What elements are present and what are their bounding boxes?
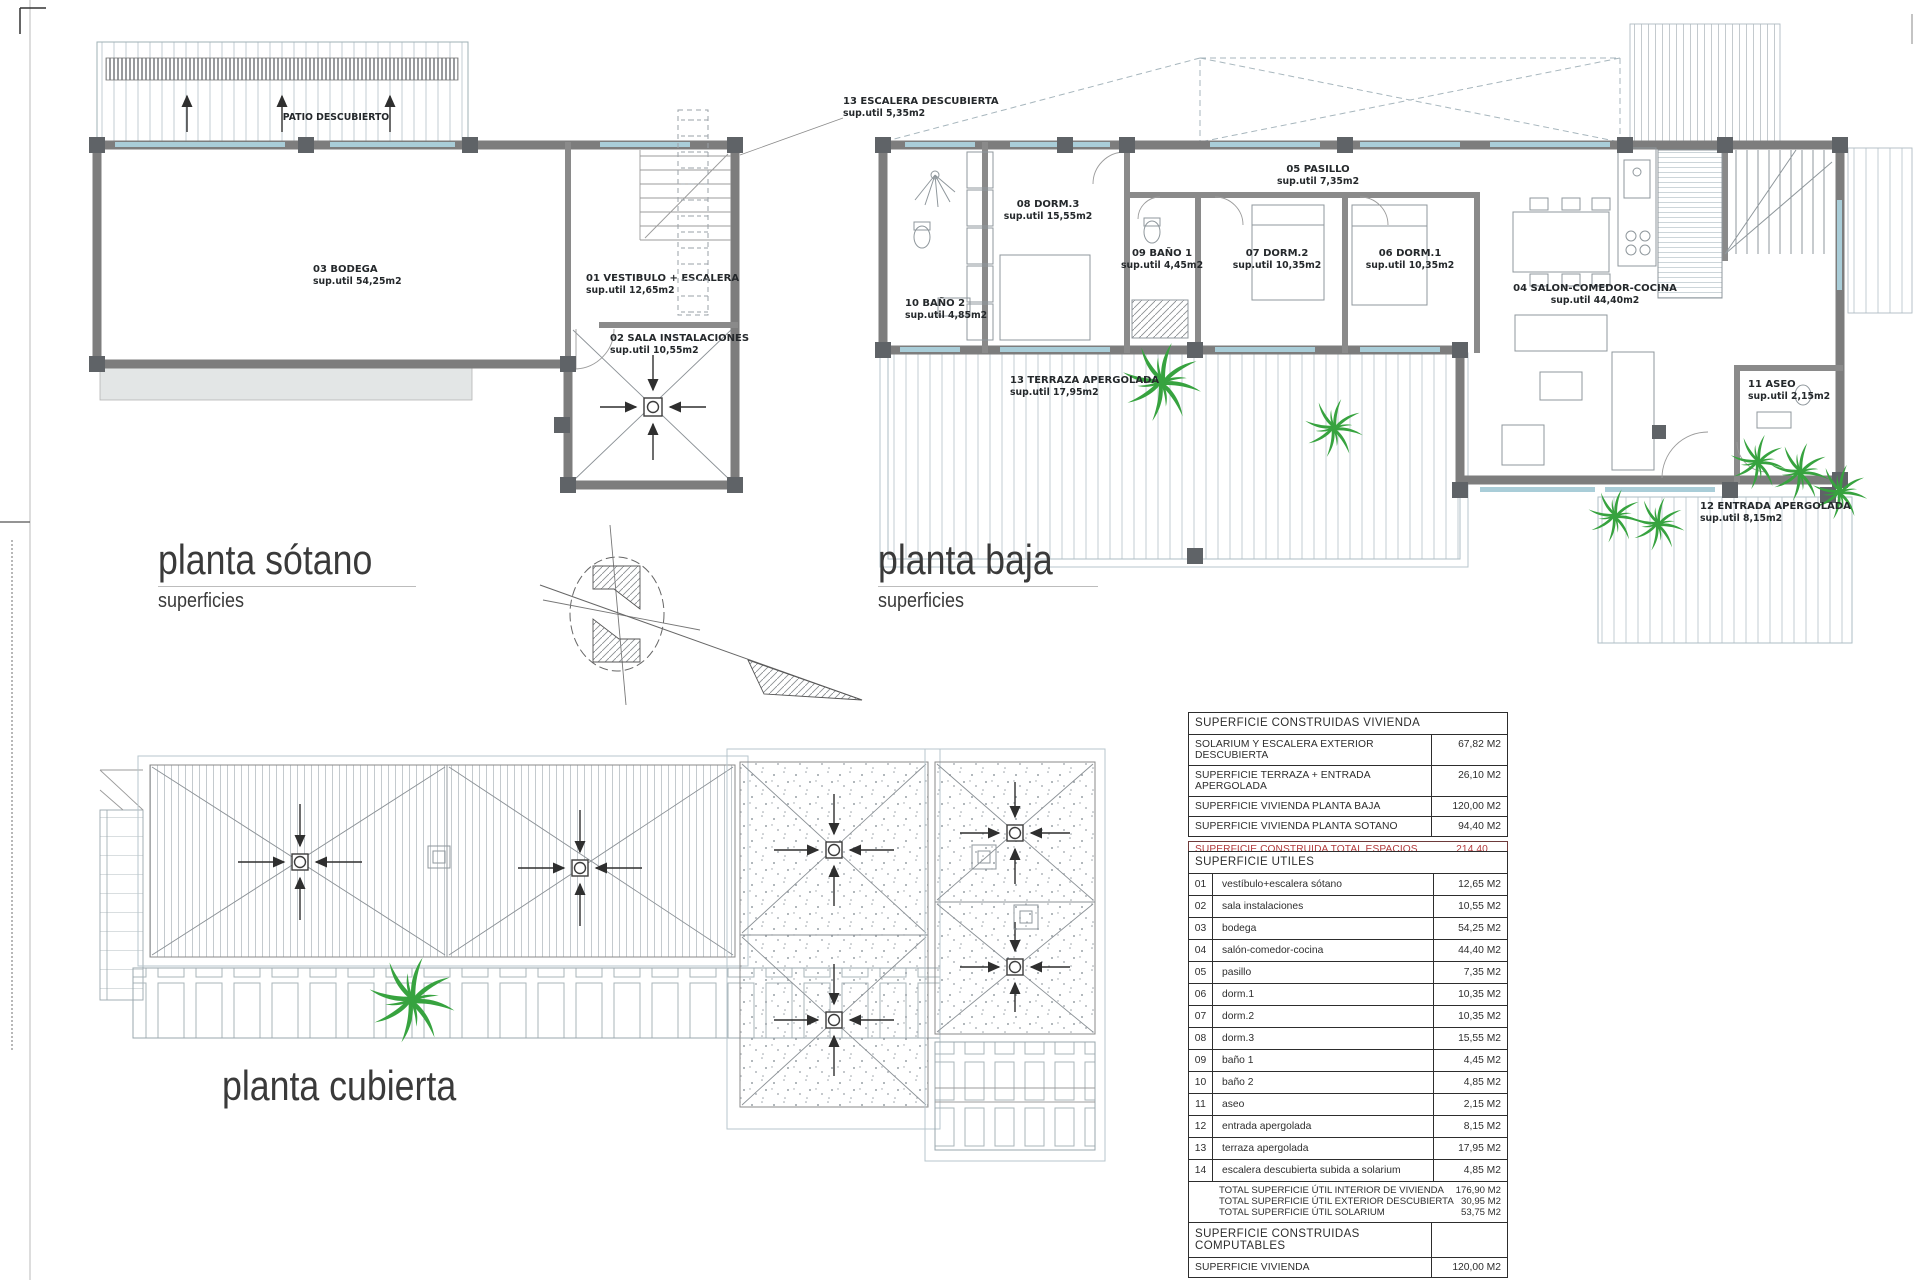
row-num: 08 [1189, 1028, 1213, 1049]
table-row: 13terraza apergolada17,95 M2 [1189, 1138, 1507, 1160]
table-row: 06dorm.110,35 M2 [1189, 984, 1507, 1006]
row-value: 10,35 M2 [1433, 1006, 1507, 1027]
room-area-sala-instalaciones: sup.util 10,55m2 [610, 345, 699, 356]
row-label: SUPERFICIE VIVIENDA [1189, 1258, 1431, 1277]
total-label: TOTAL SUPERFICIE ÚTIL SOLARIUM [1219, 1207, 1385, 1218]
room-area-vestibulo: sup.util 12,65m2 [586, 285, 675, 296]
row-label: baño 2 [1213, 1072, 1433, 1093]
table-row: SUPERFICIE VIVIENDA PLANTA BAJA 120,00 M… [1189, 797, 1507, 817]
table-row: 09baño 14,45 M2 [1189, 1050, 1507, 1072]
row-label: escalera descubierta subida a solarium [1213, 1160, 1433, 1181]
row-num: 10 [1189, 1072, 1213, 1093]
row-value: 4,45 M2 [1433, 1050, 1507, 1071]
sotano-partitions [568, 145, 735, 364]
row-value: 8,15 M2 [1433, 1116, 1507, 1137]
table-row: SUPERFICIE VIVIENDA PLANTA SOTANO 94,40 … [1189, 817, 1507, 836]
table-row: 10baño 24,85 M2 [1189, 1072, 1507, 1094]
subtitle-baja: superficies [878, 590, 964, 613]
row-value: 17,95 M2 [1433, 1138, 1507, 1159]
room-label-salon: 04 SALON-COMEDOR-COCINA [1513, 283, 1677, 294]
construidas-header: SUPERFICIE CONSTRUIDAS VIVIENDA [1189, 713, 1507, 735]
table-row: 05pasillo7,35 M2 [1189, 962, 1507, 984]
room-area-dorm2: sup.util 10,35m2 [1233, 260, 1322, 271]
sotano-windows [115, 142, 690, 147]
pergola-grid [935, 1042, 1095, 1150]
row-value: 94,40 M2 [1431, 817, 1507, 836]
table-superficie-computables: SUPERFICIE CONSTRUIDAS COMPUTABLES SUPER… [1188, 1222, 1508, 1278]
patio-label: PATIO DESCUBIERTO [283, 112, 389, 123]
room-label-escalera-descubierta: 13 ESCALERA DESCUBIERTA [843, 96, 999, 107]
table-row: SUPERFICIE TERRAZA + ENTRADA APERGOLADA … [1189, 766, 1507, 797]
row-value: 120,00 M2 [1431, 1258, 1507, 1277]
row-value: 15,55 M2 [1433, 1028, 1507, 1049]
row-num: 09 [1189, 1050, 1213, 1071]
row-label: dorm.2 [1213, 1006, 1433, 1027]
room-area-bodega: sup.util 54,25m2 [313, 276, 402, 287]
utiles-totals: TOTAL SUPERFICIE ÚTIL INTERIOR DE VIVIEN… [1189, 1181, 1507, 1222]
room-area-escalera-descubierta: sup.util 5,35m2 [843, 108, 925, 119]
table-row: SOLARIUM Y ESCALERA EXTERIOR DESCUBIERTA… [1189, 735, 1507, 766]
title-planta-baja: planta baja [878, 536, 1053, 584]
row-label: sala instalaciones [1213, 896, 1433, 917]
table-row: 08dorm.315,55 M2 [1189, 1028, 1507, 1050]
row-label: salón-comedor-cocina [1213, 940, 1433, 961]
row-label: dorm.3 [1213, 1028, 1433, 1049]
computables-header: SUPERFICIE CONSTRUIDAS COMPUTABLES [1189, 1223, 1431, 1257]
row-label: SUPERFICIE VIVIENDA PLANTA BAJA [1189, 797, 1431, 816]
row-num: 13 [1189, 1138, 1213, 1159]
room-label-entrada: 12 ENTRADA APERGOLADA [1700, 501, 1851, 512]
row-label: terraza apergolada [1213, 1138, 1433, 1159]
room-label-vestibulo: 01 VESTIBULO + ESCALERA [586, 273, 739, 284]
room-label-sala-instalaciones: 02 SALA INSTALACIONES [610, 333, 749, 344]
row-value: 4,85 M2 [1433, 1072, 1507, 1093]
row-label: SUPERFICIE VIVIENDA PLANTA SOTANO [1189, 817, 1431, 836]
room-area-bano2: sup.util 4,85m2 [905, 310, 987, 321]
table-row: 14escalera descubierta subida a solarium… [1189, 1160, 1507, 1181]
row-value: 54,25 M2 [1433, 918, 1507, 939]
table-row: 07dorm.210,35 M2 [1189, 1006, 1507, 1028]
room-label-bano1: 09 BAÑO 1 [1132, 246, 1192, 259]
room-label-bodega: 03 BODEGA [313, 264, 378, 275]
sotano-outer-walls [97, 145, 735, 485]
room-label-dorm3: 08 DORM.3 [1017, 199, 1080, 210]
table-row: 11aseo2,15 M2 [1189, 1094, 1507, 1116]
row-value: 26,10 M2 [1431, 766, 1507, 796]
subtitle-sotano: superficies [158, 590, 244, 613]
room-area-dorm1: sup.util 10,35m2 [1366, 260, 1455, 271]
room-label-dorm2: 07 DORM.2 [1246, 248, 1309, 259]
row-value: 2,15 M2 [1433, 1094, 1507, 1115]
title-baja-underline [878, 586, 1098, 587]
room-label-bano2: 10 BAÑO 2 [905, 296, 965, 309]
row-value: 10,55 M2 [1433, 896, 1507, 917]
room-area-entrada: sup.util 8,15m2 [1700, 513, 1782, 524]
sotano-pillars [89, 137, 743, 493]
row-value: 44,40 M2 [1433, 940, 1507, 961]
total-value: 53,75 M2 [1461, 1207, 1501, 1218]
row-value: 12,65 M2 [1433, 874, 1507, 895]
escalera-descubierta [678, 110, 843, 315]
row-label: bodega [1213, 918, 1433, 939]
row-label: dorm.1 [1213, 984, 1433, 1005]
room-label-aseo: 11 ASEO [1748, 379, 1796, 390]
title-planta-cubierta: planta cubierta [222, 1062, 456, 1110]
row-label: vestíbulo+escalera sótano [1213, 874, 1433, 895]
computables-header-row: SUPERFICIE CONSTRUIDAS COMPUTABLES [1189, 1223, 1507, 1258]
room-area-terraza: sup.util 17,95m2 [1010, 387, 1099, 398]
row-num: 05 [1189, 962, 1213, 983]
room-area-dorm3: sup.util 15,55m2 [1004, 211, 1093, 222]
total-label: TOTAL SUPERFICIE ÚTIL EXTERIOR DESCUBIER… [1219, 1196, 1454, 1207]
total-value: 30,95 M2 [1461, 1196, 1501, 1207]
row-num: 11 [1189, 1094, 1213, 1115]
row-num: 12 [1189, 1116, 1213, 1137]
table-superficie-utiles: SUPERFICIE UTILES 01vestíbulo+escalera s… [1188, 851, 1508, 1223]
table-row: 04salón-comedor-cocina44,40 M2 [1189, 940, 1507, 962]
table-superficie-construidas: SUPERFICIE CONSTRUIDAS VIVIENDA SOLARIUM… [1188, 712, 1508, 869]
table-row: 12entrada apergolada8,15 M2 [1189, 1116, 1507, 1138]
row-num: 14 [1189, 1160, 1213, 1181]
table-row: 03bodega54,25 M2 [1189, 918, 1507, 940]
row-label: pasillo [1213, 962, 1433, 983]
plan-baja: 13 ESCALERA DESCUBIERTA sup.util 5,35m2 … [678, 24, 1912, 643]
patio-wall-hatch [106, 58, 458, 80]
row-num: 04 [1189, 940, 1213, 961]
room-label-dorm1: 06 DORM.1 [1379, 248, 1442, 259]
row-num: 02 [1189, 896, 1213, 917]
plan-sotano: PATIO DESCUBIERTO 03 BODEGA sup.util 54,… [89, 42, 749, 493]
title-sotano-underline [158, 586, 416, 587]
row-value: 120,00 M2 [1431, 797, 1507, 816]
title-planta-sotano: planta sótano [158, 536, 372, 584]
room-label-pasillo: 05 PASILLO [1286, 164, 1349, 175]
row-value: 7,35 M2 [1433, 962, 1507, 983]
row-label: SUPERFICIE TERRAZA + ENTRADA APERGOLADA [1189, 766, 1431, 796]
row-num: 06 [1189, 984, 1213, 1005]
row-num: 01 [1189, 874, 1213, 895]
table-row: 01vestíbulo+escalera sótano12,65 M2 [1189, 874, 1507, 896]
table-row: 02sala instalaciones10,55 M2 [1189, 896, 1507, 918]
room-area-aseo: sup.util 2,15m2 [1748, 391, 1830, 402]
retaining-wall [100, 368, 472, 400]
row-label: aseo [1213, 1094, 1433, 1115]
room-area-pasillo: sup.util 7,35m2 [1277, 176, 1359, 187]
north-arrow-icon [540, 525, 862, 705]
table-row: SUPERFICIE VIVIENDA 120,00 M2 [1189, 1258, 1507, 1277]
row-label: SOLARIUM Y ESCALERA EXTERIOR DESCUBIERTA [1189, 735, 1431, 765]
row-value: 4,85 M2 [1433, 1160, 1507, 1181]
deck-right [1848, 148, 1912, 313]
row-value: 10,35 M2 [1433, 984, 1507, 1005]
room-label-terraza: 13 TERRAZA APERGOLADA [1010, 375, 1159, 386]
row-num: 03 [1189, 918, 1213, 939]
row-label: entrada apergolada [1213, 1116, 1433, 1137]
row-num: 07 [1189, 1006, 1213, 1027]
room-area-salon: sup.util 44,40m2 [1551, 295, 1640, 306]
empty-cell [1431, 1223, 1507, 1257]
total-label: TOTAL SUPERFICIE ÚTIL INTERIOR DE VIVIEN… [1219, 1185, 1444, 1196]
row-label: baño 1 [1213, 1050, 1433, 1071]
roofA [150, 765, 735, 957]
room-area-bano1: sup.util 4,45m2 [1121, 260, 1203, 271]
utiles-header: SUPERFICIE UTILES [1189, 852, 1507, 874]
total-value: 176,90 M2 [1456, 1185, 1501, 1196]
row-value: 67,82 M2 [1431, 735, 1507, 765]
deck-top-right [1630, 24, 1780, 142]
